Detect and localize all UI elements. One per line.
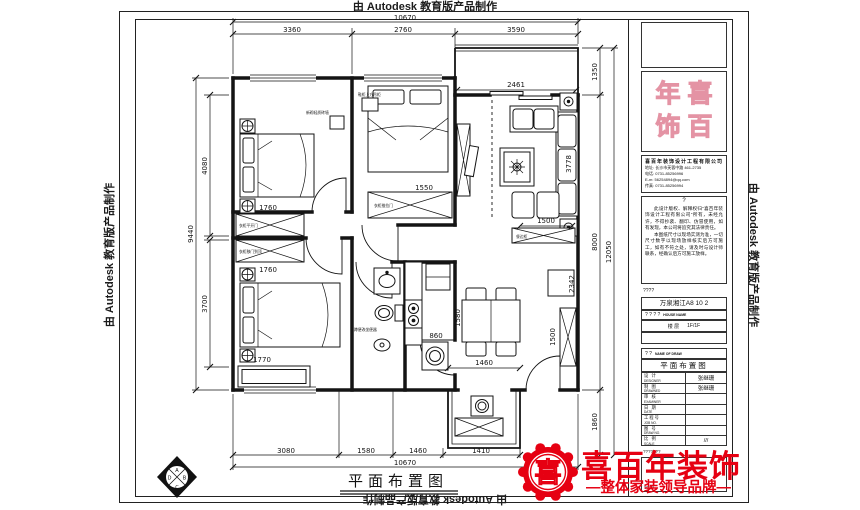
house-row: ? ? ? ? HOUSE NAME [641, 310, 727, 320]
table-row: 工程号JOB NO. [642, 414, 726, 425]
floor-value: 1F/1F [687, 323, 700, 329]
bottom-box: ???? [641, 457, 727, 492]
row-value [686, 394, 726, 404]
disclaimer-mark: ? [645, 198, 723, 205]
name-of-draw-label: NAME OF DRAW [655, 352, 682, 356]
q-row-2: ??????? [641, 447, 661, 456]
table-row: 图 号DRAW NO. [642, 425, 726, 436]
seal-char-bl: 饰 [655, 113, 680, 143]
house-q: ? ? ? ? [645, 312, 660, 318]
disclaimer-box: ? 此设计版权、解释权归“喜百年装饰设计工程有限公司”所有，未经允许，不得抄袭、… [641, 196, 727, 284]
seal-char-br: 百 [687, 113, 712, 143]
empty-row [641, 332, 727, 344]
table-row: 审 核EXAMINER [642, 393, 726, 404]
disclaimer-paragraph-1: 此设计版权、解释权归“喜百年装饰设计工程有限公司”所有，未经允许，不得抄袭、翻印… [645, 206, 723, 231]
title-table: 设 计DESIGNER张继珊 制 图DRAWNED张继珊 审 核EXAMINER… [641, 372, 727, 446]
row-value [686, 426, 726, 436]
project-name: 万泉湘江A8 10 2 [641, 297, 727, 310]
row-value: 张继珊 [686, 384, 726, 394]
draw-q: ? ? [645, 351, 652, 357]
row-value [686, 415, 726, 425]
company-seal: 年 喜 饰 百 [641, 71, 727, 152]
floor-label: 楼 层 [668, 323, 679, 330]
row-value: 张继珊 [686, 373, 726, 383]
title-block: 年 喜 饰 百 喜百年装饰设计工程有限公司 地址: 长沙市芙蓉中路 461-27… [628, 19, 733, 496]
tb-empty-box [641, 22, 727, 68]
drawing-name: 平面布置图 [641, 359, 727, 372]
company-info: 喜百年装饰设计工程有限公司 地址: 长沙市芙蓉中路 461-2735 电话: 0… [641, 155, 727, 193]
seal-char-tl: 年 [655, 80, 680, 110]
table-row: 日 期DATE [642, 404, 726, 415]
row-label-en: SCALE [644, 442, 685, 446]
company-name: 喜百年装饰设计工程有限公司 [642, 158, 726, 165]
floor-row: 楼 层 1F/1F [641, 320, 727, 332]
row-value [686, 405, 726, 415]
house-name-label: HOUSE NAME [663, 313, 686, 317]
watermark-bottom: 由 Autodesk 教育版产品制作 [330, 492, 540, 506]
blueprint-page: 由 Autodesk 教育版产品制作 由 Autodesk 教育版产品制作 由 … [0, 0, 860, 510]
watermark-top: 由 Autodesk 教育版产品制作 [320, 0, 530, 14]
watermark-right: 由 Autodesk 教育版产品制作 [746, 150, 760, 360]
company-fax: 传真: 0731-85256994 [645, 183, 726, 189]
table-row: 比 例SCALE/// [642, 435, 726, 446]
table-row: 设 计DESIGNER张继珊 [642, 373, 726, 383]
row-value: /// [686, 436, 726, 446]
q-row-1: ???? [641, 286, 727, 296]
table-row: 制 图DRAWNED张继珊 [642, 383, 726, 394]
name-of-draw-row: ? ? NAME OF DRAW [641, 348, 727, 359]
q-row-3: ???? [644, 485, 654, 490]
disclaimer-paragraph-2: 本图纸尺寸以现场实测为准，一切尺寸数字以现场放样核实后方可施工，如有不符之处，请… [645, 232, 723, 257]
watermark-left: 由 Autodesk 教育版产品制作 [103, 150, 117, 360]
seal-char-tr: 喜 [687, 80, 712, 110]
